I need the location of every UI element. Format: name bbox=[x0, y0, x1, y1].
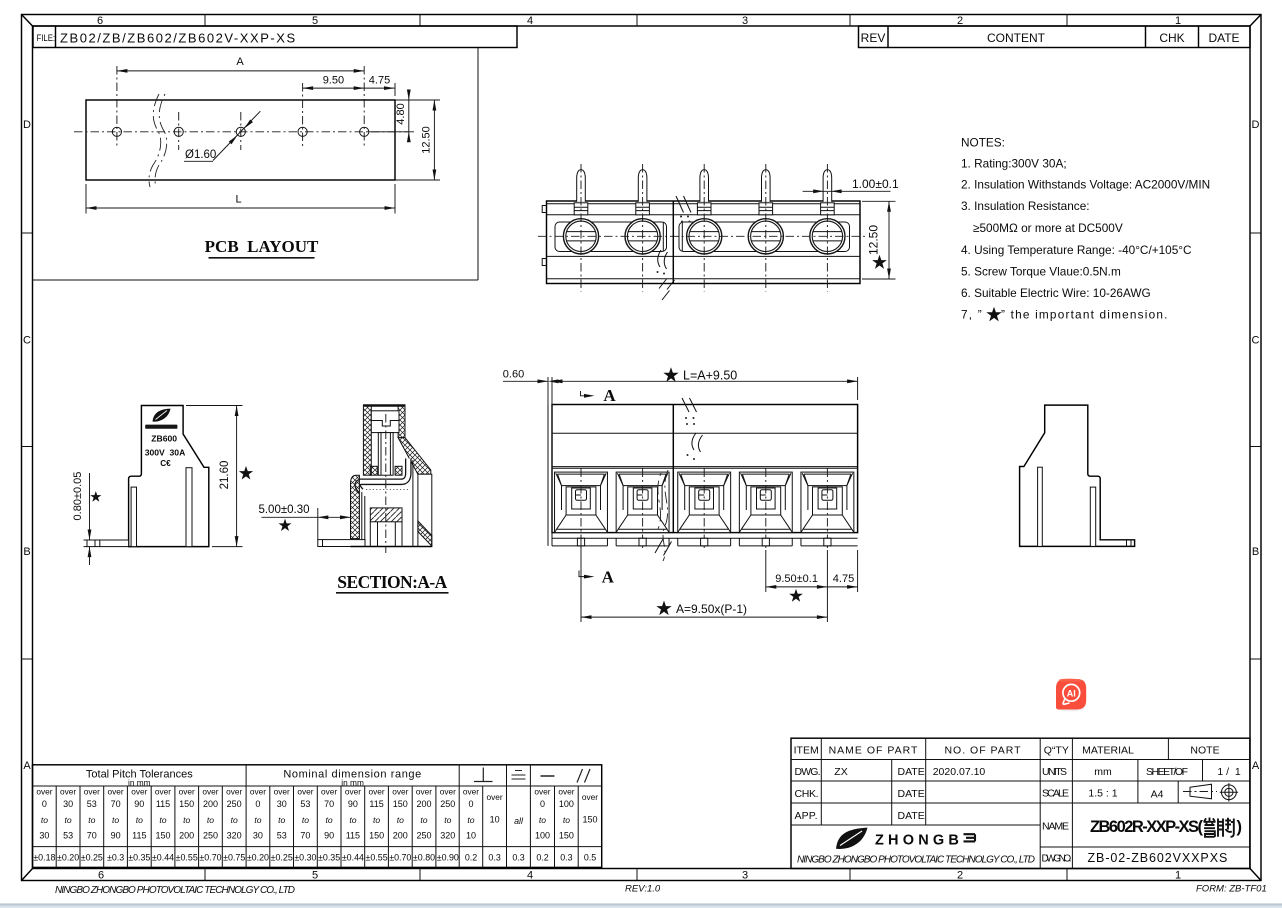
svg-text:±0.55: ±0.55 bbox=[176, 853, 198, 863]
svg-text:ZB02/ZB/ZB602/ZB602V-XXP-XS: ZB02/ZB/ZB602/ZB602V-XXP-XS bbox=[60, 31, 296, 46]
svg-text:6: 6 bbox=[98, 870, 104, 882]
svg-text:0.3: 0.3 bbox=[512, 853, 524, 863]
svg-text:over: over bbox=[463, 787, 479, 797]
svg-text:2: 2 bbox=[957, 15, 963, 27]
svg-text:to: to bbox=[302, 815, 309, 825]
svg-text:±0.30: ±0.30 bbox=[294, 853, 316, 863]
svg-text:ZHONGB: ZHONGB bbox=[875, 832, 963, 848]
svg-text:to: to bbox=[112, 815, 119, 825]
svg-text:over: over bbox=[297, 787, 313, 797]
svg-text:to: to bbox=[231, 815, 238, 825]
svg-text:B: B bbox=[1252, 546, 1259, 558]
svg-text:ZB-02-ZB602VXXPXS: ZB-02-ZB602VXXPXS bbox=[1088, 851, 1229, 865]
svg-text:over: over bbox=[250, 787, 266, 797]
svg-text:4. Using Temperature Range: -4: 4. Using Temperature Range: -40°C/+105°C bbox=[961, 243, 1192, 257]
svg-text:Q“TY: Q“TY bbox=[1044, 745, 1069, 757]
svg-text:” the important dimension.: ” the important dimension. bbox=[1001, 308, 1169, 322]
svg-text:53: 53 bbox=[277, 831, 287, 841]
svg-text:AI: AI bbox=[1067, 688, 1076, 698]
svg-text:Ø1.60: Ø1.60 bbox=[185, 149, 216, 161]
svg-text:over: over bbox=[84, 787, 100, 797]
svg-text:over: over bbox=[60, 787, 76, 797]
svg-text:70: 70 bbox=[324, 799, 334, 809]
svg-text:to: to bbox=[136, 815, 143, 825]
svg-text:to: to bbox=[563, 815, 570, 825]
svg-text:to: to bbox=[65, 815, 72, 825]
svg-text:150: 150 bbox=[155, 831, 170, 841]
svg-text:to: to bbox=[467, 815, 474, 825]
svg-text:±0.44: ±0.44 bbox=[152, 853, 174, 863]
svg-text:C: C bbox=[1252, 335, 1260, 347]
svg-text:C€: C€ bbox=[160, 459, 171, 468]
svg-text:ZB602R-XXP-XS(: ZB602R-XXP-XS( bbox=[1090, 818, 1204, 836]
svg-text:over: over bbox=[392, 787, 408, 797]
svg-text:to: to bbox=[539, 815, 546, 825]
svg-text:over: over bbox=[226, 787, 242, 797]
svg-text:to: to bbox=[444, 815, 451, 825]
svg-text:250: 250 bbox=[416, 831, 431, 841]
svg-text:150: 150 bbox=[582, 815, 597, 825]
svg-text:53: 53 bbox=[87, 799, 97, 809]
svg-text:over: over bbox=[155, 787, 171, 797]
svg-text:SHEET/OF: SHEET/OF bbox=[1146, 766, 1188, 778]
svg-text:±0.55: ±0.55 bbox=[366, 853, 388, 863]
svg-text:0.80±0.05: 0.80±0.05 bbox=[72, 472, 84, 521]
svg-text:CHK: CHK bbox=[1159, 31, 1184, 45]
svg-text:12.50: 12.50 bbox=[421, 126, 433, 154]
svg-text:30: 30 bbox=[277, 799, 287, 809]
svg-text:A: A bbox=[603, 386, 616, 405]
svg-text:9.50: 9.50 bbox=[323, 75, 344, 87]
svg-text:DATE: DATE bbox=[898, 766, 925, 778]
svg-text:to: to bbox=[397, 815, 404, 825]
svg-text:6. Suitable Electric Wire: 10-: 6. Suitable Electric Wire: 10-26AWG bbox=[961, 286, 1151, 300]
svg-text:±0.25: ±0.25 bbox=[81, 853, 103, 863]
svg-text:70: 70 bbox=[87, 831, 97, 841]
svg-text:over: over bbox=[131, 787, 147, 797]
svg-text:0: 0 bbox=[468, 799, 473, 809]
svg-text:over: over bbox=[202, 787, 218, 797]
svg-text:DWGNO.: DWGNO. bbox=[1042, 854, 1072, 865]
svg-text:to: to bbox=[420, 815, 427, 825]
svg-text:to: to bbox=[326, 815, 333, 825]
svg-text:200: 200 bbox=[416, 799, 431, 809]
svg-text:MATERIAL: MATERIAL bbox=[1082, 745, 1134, 757]
svg-text:10: 10 bbox=[490, 815, 500, 825]
svg-text:L: L bbox=[235, 194, 241, 206]
svg-text:over: over bbox=[36, 787, 52, 797]
svg-text:9.50±0.1: 9.50±0.1 bbox=[775, 573, 818, 585]
svg-text:250: 250 bbox=[440, 799, 455, 809]
svg-text:to: to bbox=[207, 815, 214, 825]
svg-text:0.2: 0.2 bbox=[465, 853, 477, 863]
svg-text:21.60: 21.60 bbox=[219, 461, 231, 490]
svg-text:A=9.50x(P-1): A=9.50x(P-1) bbox=[676, 602, 747, 616]
svg-text:±0.25: ±0.25 bbox=[271, 853, 293, 863]
svg-text:to: to bbox=[278, 815, 285, 825]
svg-text:90: 90 bbox=[134, 799, 144, 809]
svg-text:over: over bbox=[108, 787, 124, 797]
svg-text:NINGBO ZHONGBO PHOTOVOLTAIC TE: NINGBO ZHONGBO PHOTOVOLTAIC TECHNOLGY CO… bbox=[797, 855, 1035, 866]
svg-text:A: A bbox=[602, 568, 615, 587]
svg-text:30: 30 bbox=[39, 831, 49, 841]
svg-text:1.00±0.1: 1.00±0.1 bbox=[852, 177, 899, 191]
svg-text:115: 115 bbox=[132, 831, 146, 841]
svg-text:FORM: ZB-TF01: FORM: ZB-TF01 bbox=[1196, 884, 1267, 895]
svg-text:10: 10 bbox=[466, 831, 476, 841]
svg-text:0.60: 0.60 bbox=[503, 369, 524, 381]
svg-text:5: 5 bbox=[312, 870, 318, 882]
svg-text:±0.80: ±0.80 bbox=[413, 853, 435, 863]
svg-text:150: 150 bbox=[179, 799, 194, 809]
svg-text:4.80: 4.80 bbox=[395, 103, 407, 124]
svg-text:ITEM: ITEM bbox=[794, 745, 819, 757]
svg-text:3: 3 bbox=[742, 870, 748, 882]
svg-text:90: 90 bbox=[324, 831, 334, 841]
svg-text:±0.20: ±0.20 bbox=[57, 853, 79, 863]
svg-text:A: A bbox=[23, 760, 31, 772]
svg-text:30: 30 bbox=[253, 831, 263, 841]
svg-text:all: all bbox=[514, 816, 524, 826]
svg-text:C: C bbox=[23, 335, 31, 347]
svg-text:7, ”: 7, ” bbox=[961, 308, 983, 322]
svg-text:NAME OF PART: NAME OF PART bbox=[829, 745, 919, 757]
svg-text:over: over bbox=[369, 787, 385, 797]
svg-text:ZX: ZX bbox=[834, 766, 847, 778]
svg-text:3: 3 bbox=[742, 15, 748, 27]
svg-text:DATE: DATE bbox=[898, 810, 925, 822]
svg-text:115: 115 bbox=[346, 831, 360, 841]
svg-text:REV: REV bbox=[861, 31, 886, 45]
svg-text:53: 53 bbox=[300, 799, 310, 809]
svg-text:to: to bbox=[373, 815, 380, 825]
svg-text:over: over bbox=[558, 787, 574, 797]
svg-text:APP.: APP. bbox=[795, 810, 818, 822]
svg-text:over: over bbox=[487, 792, 503, 802]
svg-text:DWG.: DWG. bbox=[795, 766, 821, 778]
svg-text:±0.35: ±0.35 bbox=[318, 853, 340, 863]
svg-text:100: 100 bbox=[559, 799, 574, 809]
svg-text:200: 200 bbox=[393, 831, 408, 841]
svg-text:±0.44: ±0.44 bbox=[342, 853, 364, 863]
svg-text:320: 320 bbox=[440, 831, 455, 841]
svg-text:1. Rating:300V 30A;: 1. Rating:300V 30A; bbox=[961, 157, 1067, 171]
svg-text:to: to bbox=[159, 815, 166, 825]
svg-text:NINGBO ZHONGBO PHOTOVOLTAIC TE: NINGBO ZHONGBO PHOTOVOLTAIC TECHNOLGY CO… bbox=[55, 885, 295, 896]
svg-text:1 / 1: 1 / 1 bbox=[1217, 766, 1241, 778]
svg-text:to: to bbox=[88, 815, 95, 825]
svg-text:0.3: 0.3 bbox=[560, 853, 572, 863]
svg-text:2: 2 bbox=[957, 870, 963, 882]
svg-text:150: 150 bbox=[393, 799, 408, 809]
svg-text:115: 115 bbox=[369, 799, 383, 809]
svg-text:NAME: NAME bbox=[1042, 821, 1069, 833]
svg-text:mm: mm bbox=[1094, 766, 1112, 778]
svg-text:300V 30A: 300V 30A bbox=[145, 447, 186, 457]
svg-text:B: B bbox=[23, 546, 30, 558]
svg-text:90: 90 bbox=[348, 799, 358, 809]
svg-text:0.3: 0.3 bbox=[488, 853, 500, 863]
svg-text:±0.35: ±0.35 bbox=[128, 853, 150, 863]
svg-text:5. Screw Torque Vlaue:0.5N.m: 5. Screw Torque Vlaue:0.5N.m bbox=[961, 265, 1121, 279]
svg-text:DATE: DATE bbox=[1208, 31, 1239, 45]
svg-text:ZB600: ZB600 bbox=[151, 434, 177, 444]
svg-text:A: A bbox=[1252, 760, 1260, 772]
svg-text:6: 6 bbox=[97, 15, 103, 27]
svg-text:0.5: 0.5 bbox=[584, 853, 596, 863]
svg-text:0: 0 bbox=[540, 799, 545, 809]
svg-text:PCB LAYOUT: PCB LAYOUT bbox=[205, 237, 319, 256]
svg-text:5: 5 bbox=[312, 15, 318, 27]
svg-text:to: to bbox=[183, 815, 190, 825]
svg-text:L=A+9.50: L=A+9.50 bbox=[683, 369, 737, 383]
svg-text:±0.18: ±0.18 bbox=[33, 853, 55, 863]
svg-text:): ) bbox=[1237, 818, 1243, 836]
svg-text:±0.3: ±0.3 bbox=[107, 853, 124, 863]
svg-text:150: 150 bbox=[369, 831, 384, 841]
svg-text:over: over bbox=[274, 787, 290, 797]
svg-text:over: over bbox=[582, 792, 598, 802]
svg-text:200: 200 bbox=[179, 831, 194, 841]
svg-text:to: to bbox=[41, 815, 48, 825]
svg-text:±0.70: ±0.70 bbox=[199, 853, 221, 863]
svg-text:NOTE: NOTE bbox=[1190, 745, 1219, 757]
svg-text:±0.70: ±0.70 bbox=[389, 853, 411, 863]
svg-text:±0.20: ±0.20 bbox=[247, 853, 269, 863]
svg-text:to: to bbox=[254, 815, 261, 825]
svg-text:1.5 : 1: 1.5 : 1 bbox=[1088, 788, 1117, 800]
svg-text:70: 70 bbox=[111, 799, 121, 809]
svg-text:NO. OF PART: NO. OF PART bbox=[944, 745, 1021, 757]
svg-text:over: over bbox=[179, 787, 195, 797]
svg-text:DATE: DATE bbox=[898, 788, 925, 800]
svg-text:4: 4 bbox=[527, 870, 533, 882]
svg-text:UNITS: UNITS bbox=[1042, 766, 1067, 778]
svg-text:over: over bbox=[321, 787, 337, 797]
svg-text:SCALE: SCALE bbox=[1042, 788, 1069, 800]
svg-text:1: 1 bbox=[1175, 870, 1181, 882]
svg-text:0: 0 bbox=[42, 799, 47, 809]
svg-text:320: 320 bbox=[227, 831, 242, 841]
svg-text:150: 150 bbox=[559, 831, 574, 841]
svg-text:0: 0 bbox=[255, 799, 260, 809]
svg-text:200: 200 bbox=[203, 799, 218, 809]
svg-text:SECTION:A-A: SECTION:A-A bbox=[337, 572, 447, 592]
svg-text:over: over bbox=[440, 787, 456, 797]
svg-text:90: 90 bbox=[111, 831, 121, 841]
svg-text:70: 70 bbox=[300, 831, 310, 841]
svg-text:±0.75: ±0.75 bbox=[223, 853, 245, 863]
svg-text:over: over bbox=[534, 787, 550, 797]
svg-text:53: 53 bbox=[63, 831, 73, 841]
svg-text:12.50: 12.50 bbox=[867, 225, 881, 255]
svg-text:≥500MΩ or more at DC500V: ≥500MΩ or more at DC500V bbox=[973, 221, 1123, 235]
svg-text:250: 250 bbox=[227, 799, 242, 809]
svg-text:115: 115 bbox=[156, 799, 170, 809]
svg-text:2020.07.10: 2020.07.10 bbox=[933, 766, 986, 778]
svg-text:REV:1.0: REV:1.0 bbox=[625, 884, 661, 895]
svg-text:4: 4 bbox=[527, 15, 533, 27]
svg-text:D: D bbox=[23, 119, 31, 131]
svg-text:1: 1 bbox=[1175, 15, 1181, 27]
svg-text:CHK.: CHK. bbox=[795, 788, 819, 800]
svg-text:5.00±0.30: 5.00±0.30 bbox=[258, 504, 309, 516]
svg-text:FILE:: FILE: bbox=[37, 32, 56, 43]
svg-text:to: to bbox=[349, 815, 356, 825]
svg-text:over: over bbox=[416, 787, 432, 797]
svg-text:A: A bbox=[236, 56, 244, 68]
svg-text:D: D bbox=[1252, 119, 1260, 131]
svg-text:30: 30 bbox=[63, 799, 73, 809]
svg-text:CONTENT: CONTENT bbox=[987, 31, 1046, 45]
svg-text:100: 100 bbox=[535, 831, 550, 841]
svg-text:A4: A4 bbox=[1151, 789, 1164, 801]
svg-text:3. Insulation Resistance:: 3. Insulation Resistance: bbox=[961, 199, 1090, 213]
svg-text:4.75: 4.75 bbox=[833, 573, 854, 585]
svg-text:4.75: 4.75 bbox=[369, 75, 390, 87]
svg-text:over: over bbox=[345, 787, 361, 797]
svg-text:2. Insulation Withstands Volta: 2. Insulation Withstands Voltage: AC2000… bbox=[961, 178, 1210, 192]
svg-text:NOTES:: NOTES: bbox=[961, 136, 1005, 150]
svg-text:250: 250 bbox=[203, 831, 218, 841]
svg-text:±0.90: ±0.90 bbox=[437, 853, 459, 863]
svg-text:0.2: 0.2 bbox=[536, 853, 548, 863]
